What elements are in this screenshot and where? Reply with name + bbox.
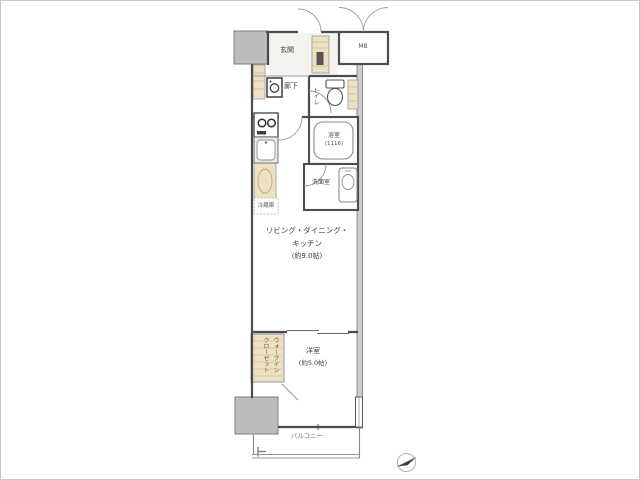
entrance-label: 玄関	[273, 45, 301, 55]
closet-door-line	[282, 384, 298, 400]
refrigerator-label: 冷蔵庫	[253, 201, 279, 209]
balcony-divider	[258, 447, 266, 457]
bedroom-size: (約5.0帖)	[283, 357, 343, 369]
ldk-label-line1: リビング・ダイニング・	[251, 225, 363, 238]
toilet-cabinet	[348, 80, 358, 109]
ldk-label-line2: キッチン	[251, 238, 363, 251]
floor-plan-image: 玄関 MB 廊下 トイレ 浴室 (1116) 洗面室 冷蔵庫 リビング・ダイニン…	[0, 0, 640, 480]
toilet-icon	[326, 80, 344, 106]
bedroom-window	[356, 397, 363, 427]
toilet-label: トイレ	[311, 78, 320, 114]
pillar-bottom	[235, 397, 278, 434]
closet-label-col-left: クローゼット	[260, 337, 270, 387]
shoe-cabinet	[312, 36, 329, 73]
washbasin-icon	[339, 168, 357, 202]
bedroom-name: 洋室	[283, 345, 343, 357]
pillar-top	[234, 31, 268, 64]
closet-label-col-right: ウォークイン	[270, 337, 280, 387]
ldk-size: (約9.0帖)	[251, 250, 363, 263]
bathroom-size: (1116)	[311, 140, 357, 149]
kitchen-sink-icon	[254, 137, 278, 163]
sliding-door	[287, 331, 349, 334]
north-compass-icon	[398, 454, 416, 472]
ldk-label: リビング・ダイニング・ キッチン (約9.0帖)	[251, 225, 363, 263]
washroom-label: 洗面室	[304, 177, 338, 186]
closet-label: ウォークイン クローゼット	[256, 337, 280, 387]
mb-door-arcs	[339, 8, 388, 33]
hall-storage	[253, 65, 265, 99]
kitchen-counter	[254, 163, 276, 199]
bathroom-label: 浴室 (1116)	[311, 131, 357, 149]
hallway-label: 廊下	[277, 81, 305, 91]
entrance-door-arc	[298, 9, 321, 32]
bathroom-name: 浴室	[311, 131, 357, 140]
bedroom-label: 洋室 (約5.0帖)	[283, 345, 343, 369]
meter-box-label: MB	[349, 43, 377, 50]
hallway-door-arc	[279, 117, 302, 140]
cooktop-icon	[254, 113, 278, 137]
balcony-label: バルコニー	[283, 430, 331, 440]
